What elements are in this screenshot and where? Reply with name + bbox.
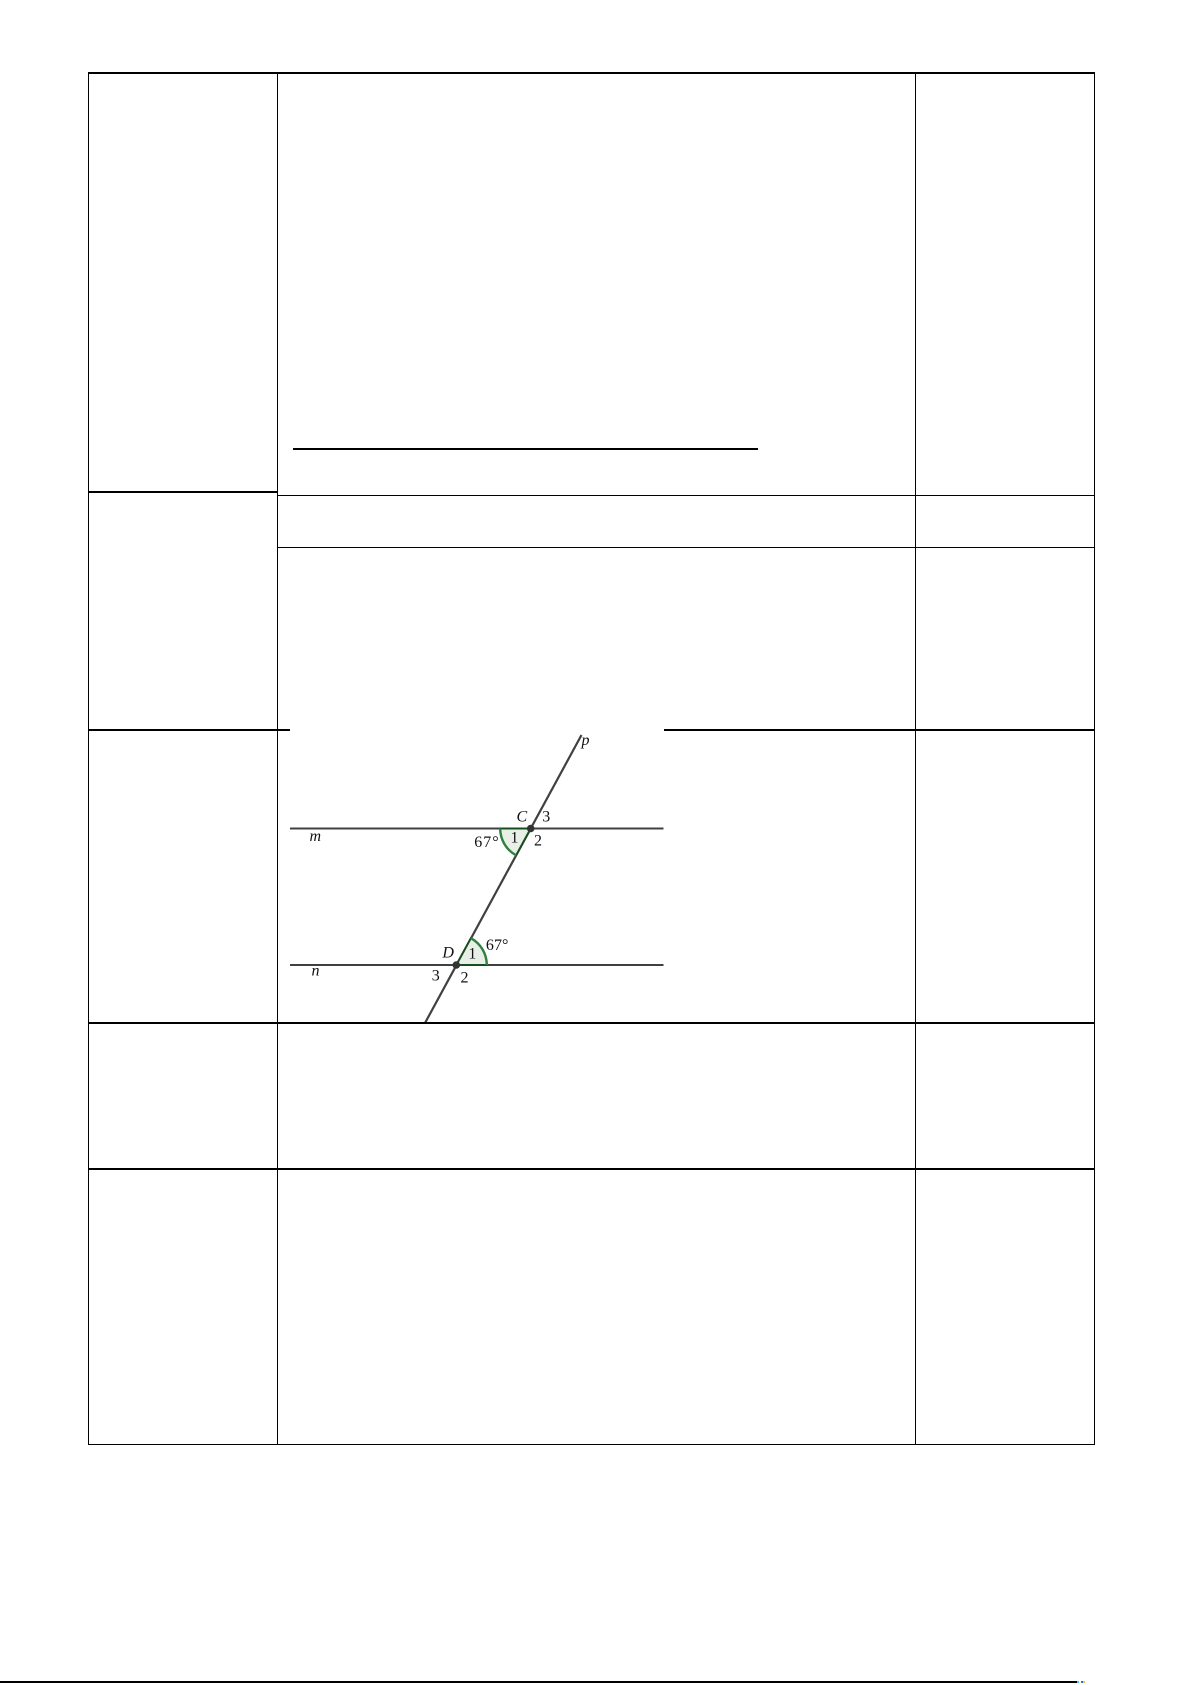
- svg-text:1: 1: [510, 829, 518, 846]
- svg-text:1: 1: [468, 945, 476, 962]
- svg-text:n: n: [311, 962, 319, 979]
- svg-text:2: 2: [534, 833, 542, 850]
- svg-text:2: 2: [460, 969, 468, 986]
- svg-text:C: C: [516, 809, 527, 826]
- svg-text:67°: 67°: [474, 834, 499, 851]
- svg-text:D: D: [441, 945, 454, 962]
- svg-text:3: 3: [431, 967, 439, 984]
- svg-text:67°: 67°: [485, 937, 508, 954]
- svg-text:p: p: [580, 732, 589, 749]
- svg-text:3: 3: [542, 809, 550, 826]
- svg-text:m: m: [309, 828, 321, 845]
